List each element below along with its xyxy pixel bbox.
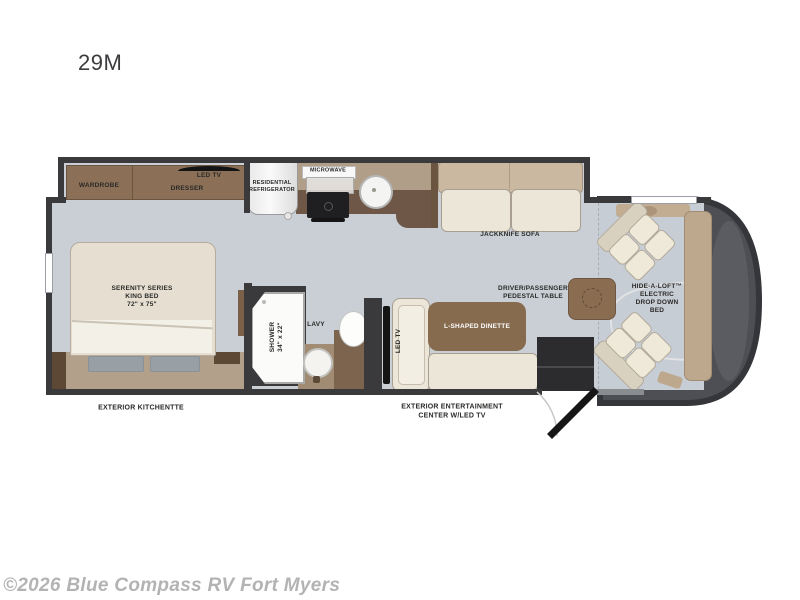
- sofa-seat-right: [511, 189, 581, 232]
- bed-platform-corner-right: [214, 352, 240, 364]
- front-top-wall: [586, 197, 634, 203]
- exterior-entertainment-label: EXTERIOR ENTERTAINMENT CENTER W/LED TV: [401, 403, 503, 421]
- bottom-wall-cab-trim: [596, 389, 644, 395]
- wardrobe-label: WARDROBE: [79, 182, 119, 190]
- pedestal-table-cupholder: [582, 288, 602, 308]
- kitchen-counter-extension: [396, 214, 436, 228]
- slideout-left-wall: [58, 157, 64, 198]
- refrigerator-foot: [284, 212, 292, 220]
- exterior-kitchenette-label: EXTERIOR KITCHENTTE: [98, 405, 184, 414]
- bottom-wall: [46, 389, 542, 395]
- king-bed-label: SERENITY SERIES KING BED 72" x 75": [111, 285, 172, 309]
- dinette-seat-bottom: [428, 353, 538, 391]
- dinette-tv-icon: [383, 306, 390, 384]
- cab-dashboard: [684, 211, 712, 381]
- dinette-label: L-SHAPED DINETTE: [444, 323, 510, 331]
- range-burner: [324, 202, 333, 211]
- jackknife-sofa-label: JACKKNIFE SOFA: [480, 231, 540, 239]
- vanity-sink: [303, 348, 333, 378]
- refrigerator-label: RESIDENTIAL REFRIGERATOR: [249, 180, 295, 194]
- shower-drain: [262, 300, 266, 304]
- bedroom-tv-icon: [178, 166, 240, 171]
- rv-floorplan-page: 29M: [0, 0, 800, 600]
- bedroom-bath-wall-trim: [238, 290, 244, 336]
- vanity-faucet-icon: [313, 376, 320, 383]
- bath-dinette-wall: [364, 298, 382, 390]
- slideout-top-wall: [58, 157, 590, 163]
- bed-pillow-left: [88, 356, 144, 372]
- microwave-label: MICROWAVE: [310, 168, 346, 175]
- dinette-tv-label: LED TV: [395, 329, 403, 353]
- hide-a-loft-label: HIDE-A-LOFT™ ELECTRIC DROP DOWN BED: [632, 283, 682, 316]
- bedroom-bath-wall: [244, 283, 252, 389]
- dealer-watermark: ©2026 Blue Compass RV Fort Myers: [3, 575, 340, 597]
- dresser-label: DRESSER: [171, 185, 204, 193]
- entry-entertainment-cabinet: [537, 337, 594, 391]
- shower-label: SHOWER 34" x 22": [269, 322, 285, 352]
- floorplan-model-title: 29M: [78, 50, 122, 76]
- range-lip: [311, 218, 345, 222]
- kitchen-sink-drain: [372, 188, 376, 192]
- bedroom-tv-label: LED TV: [197, 172, 221, 180]
- kitchen-sink: [359, 175, 393, 209]
- bed-platform-corner-left: [52, 352, 66, 389]
- entry-entertainment-cabinet-seam: [537, 366, 594, 368]
- pedestal-table-label: DRIVER/PASSENGER PEDESTAL TABLE: [498, 285, 568, 301]
- lavy-label: LAVY: [307, 321, 325, 329]
- front-top-window: [631, 196, 697, 204]
- rear-wall-lower: [46, 291, 52, 395]
- sofa-back-seam: [509, 163, 510, 190]
- sofa-armrest-left: [431, 162, 438, 228]
- bed-pillow-right: [150, 356, 200, 372]
- rear-wall-window: [45, 253, 53, 293]
- sofa-seat-left: [441, 189, 511, 232]
- rear-wall-upper: [46, 197, 52, 255]
